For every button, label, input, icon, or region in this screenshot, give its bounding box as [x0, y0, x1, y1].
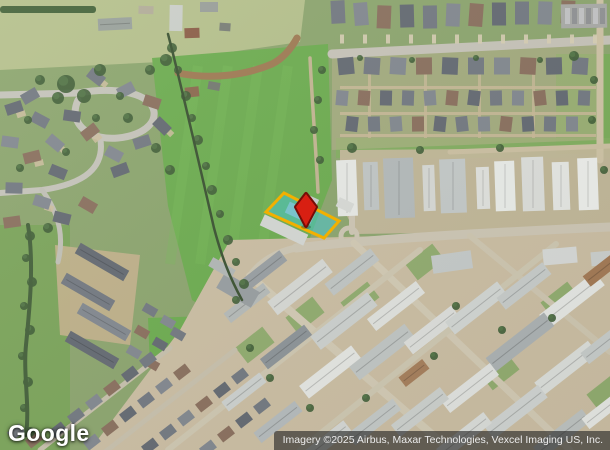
satellite-map-canvas	[0, 0, 610, 450]
attribution-text: Imagery ©2025 Airbus, Maxar Technologies…	[283, 434, 603, 446]
attribution-bar: Imagery ©2025 Airbus, Maxar Technologies…	[274, 431, 610, 450]
google-logo[interactable]: Google	[8, 420, 90, 447]
google-logo-text: Google	[8, 420, 90, 446]
map-viewport[interactable]: Google Imagery ©2025 Airbus, Maxar Techn…	[0, 0, 610, 450]
